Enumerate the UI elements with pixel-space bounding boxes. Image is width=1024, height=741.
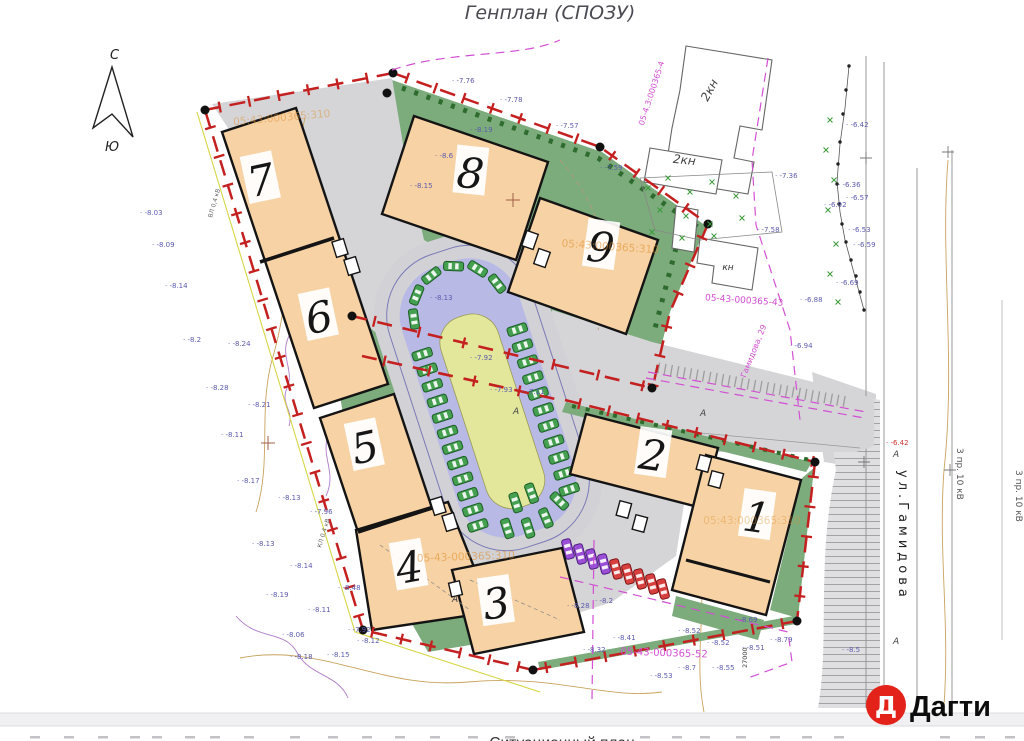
spot-elevation: · -8.11 [308,606,331,614]
drawing-title: Генплан (СПОЗУ) [465,2,635,24]
spot-elevation: · -7.57 [556,122,579,130]
spot-elevation: · -7.11 [522,388,545,396]
spot-elevation: · -7.93 [490,386,513,394]
street-name: ул.Гамидова [895,470,910,601]
spot-elevation: · -7.76 [452,77,475,85]
spot-elevation: · -8.55 [712,664,735,672]
spot-elevation: · -8.13 [278,494,301,502]
spot-elevation: · -8.2 [183,336,201,344]
spot-elevation: · -6.42 [846,121,869,129]
spot-elevation: · -8.15 [410,182,433,190]
svg-text:8: 8 [455,148,487,200]
spot-elevation: · -6.94 [790,342,813,350]
bottom-caption: Ситуационный план [489,735,634,741]
neighbor-label-2kn-b: 2кн [672,152,696,168]
road-letter: А [699,409,706,419]
boundary-point [793,617,802,626]
spot-elevation: · -8.15 [327,651,350,659]
spot-elevation: · -8.21 [248,401,271,409]
spot-elevation: · -8.51 [742,644,765,652]
spot-elevation: · -8.28 [567,602,590,610]
spot-elevation: · -8.24 [228,340,251,348]
spot-elevation: · -8.13 [252,540,275,548]
spot-elevation: · -8.11 [221,431,244,439]
boundary-point [383,89,392,98]
spot-elevation: · -6.92 [824,201,847,209]
spot-elevation: · -7.78 [500,96,523,104]
spot-elevation: · -8.06 [282,631,305,639]
spot-elevation: · -8.17 [237,477,260,485]
spot-elevation: · -8.14 [165,282,188,290]
boundary-point [348,312,357,321]
power-line-label: 3 пр. 10 кВ [954,448,964,500]
spot-elevation: · -8.79 [770,636,793,644]
spot-elevation: · -8.52 [707,639,730,647]
road-letter: А [451,595,458,605]
spot-elevation: · -8.52 [678,627,701,635]
spot-elevation: · -8.6 [435,152,454,160]
spot-elevation: · -8.7 [678,664,696,672]
spot-elevation: · -8.2 [595,597,613,605]
spot-elevation: · -6.36 [838,181,861,189]
spot-elevation: · -8.41 [613,634,636,642]
car-icon [443,261,463,271]
boundary-point [201,106,210,115]
spot-elevation: · -8.03 [140,209,163,217]
spot-elevation: · -8.09 [152,241,175,249]
spot-elevation: · -8.19 [470,126,493,134]
spot-elevation: · -7.59 [600,164,623,172]
spot-elevation: · -7.96 [310,508,333,516]
brand-logo: Д Дагти [866,685,991,725]
road-letter: А [892,450,899,460]
spot-elevation: · -8.48 [338,584,361,592]
site-plan: Генплан (СПОЗУ) С Ю 1 2 3 4 5 6 7 8 9 2к… [0,0,1024,741]
compass-north-label: С [110,48,120,63]
spot-elevation: · -6.42 [886,439,909,447]
spot-elevation: · -8.5 [842,646,860,654]
cadastral-number: 05:43:000365:310 [703,515,800,527]
spot-elevation: · -7.36 [775,172,798,180]
spot-elevation: · -8.19 [266,591,289,599]
boundary-point [529,666,538,675]
brand-logo-letter: Д [875,691,897,720]
neighbor-label-kn: кн [722,263,733,273]
spot-elevation: · -6.69 [836,279,859,287]
compass-south-label: Ю [105,140,119,155]
spot-elevation: · -6.88 [800,296,823,304]
spot-elevation: · -8.32 [583,646,606,654]
spot-elevation: · -7.58 [757,226,780,234]
power-line-label: 3 пр. 10 кВ [1013,470,1023,522]
building-label-8: 8 [452,145,489,200]
spot-elevation: · -6.57 [846,194,869,202]
spot-elevation: · -8.13 [430,294,453,302]
spot-elevation: · -8.12 [357,637,380,645]
brand-name: Дагти [910,691,991,723]
spot-elevation: · -8.28 [206,384,229,392]
spot-elevation: · -8.14 [290,562,313,570]
spot-elevation: · -8.69 [735,616,758,624]
spot-elevation: · -8.53 [650,672,673,680]
spot-elevation: · -7.92 [470,354,493,362]
boundary-point [596,143,605,152]
road-letter: А [512,407,519,417]
boundary-point [704,220,713,229]
spot-elevation: · -7.92 [348,626,371,634]
road-letter: А [892,637,899,647]
spot-elevation: · -6.53 [848,226,871,234]
spot-elevation: · -6.59 [853,241,876,249]
spot-elevation: · -8.18 [290,653,313,661]
boundary-point [648,384,657,393]
boundary-point [811,458,820,467]
